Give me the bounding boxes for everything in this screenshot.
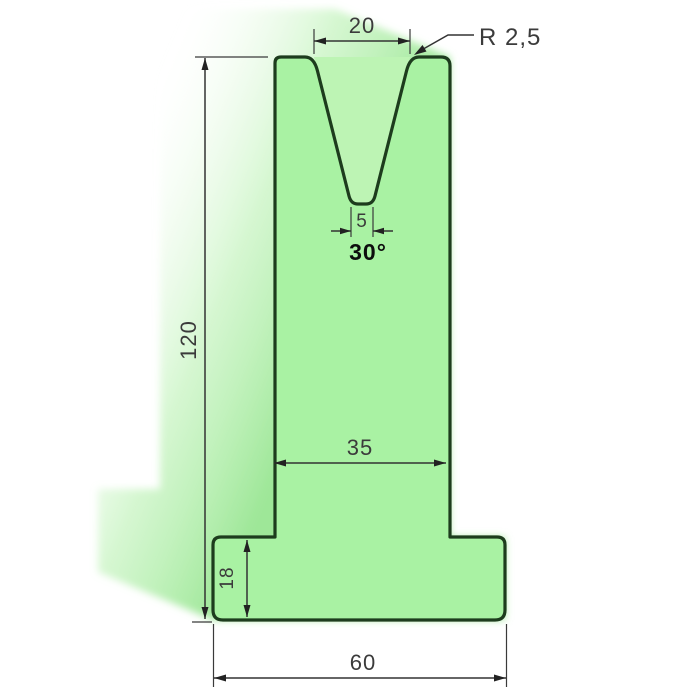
dim-base-width-label: 60	[350, 650, 376, 675]
drawing-canvas: 20 R 2,5 5 30° 120	[0, 0, 700, 700]
dim-total-height-label: 120	[176, 320, 201, 360]
dim-base-height-label: 18	[217, 566, 238, 589]
dim-vee-bottom-label: 5	[356, 211, 368, 232]
technical-drawing-svg: 20 R 2,5 5 30° 120	[0, 0, 700, 700]
dim-vee-angle-label: 30°	[349, 239, 387, 265]
dim-corner-radius-label: R 2,5	[479, 24, 541, 51]
dim-vee-opening-label: 20	[349, 13, 375, 38]
dim-body-width-label: 35	[347, 435, 373, 460]
